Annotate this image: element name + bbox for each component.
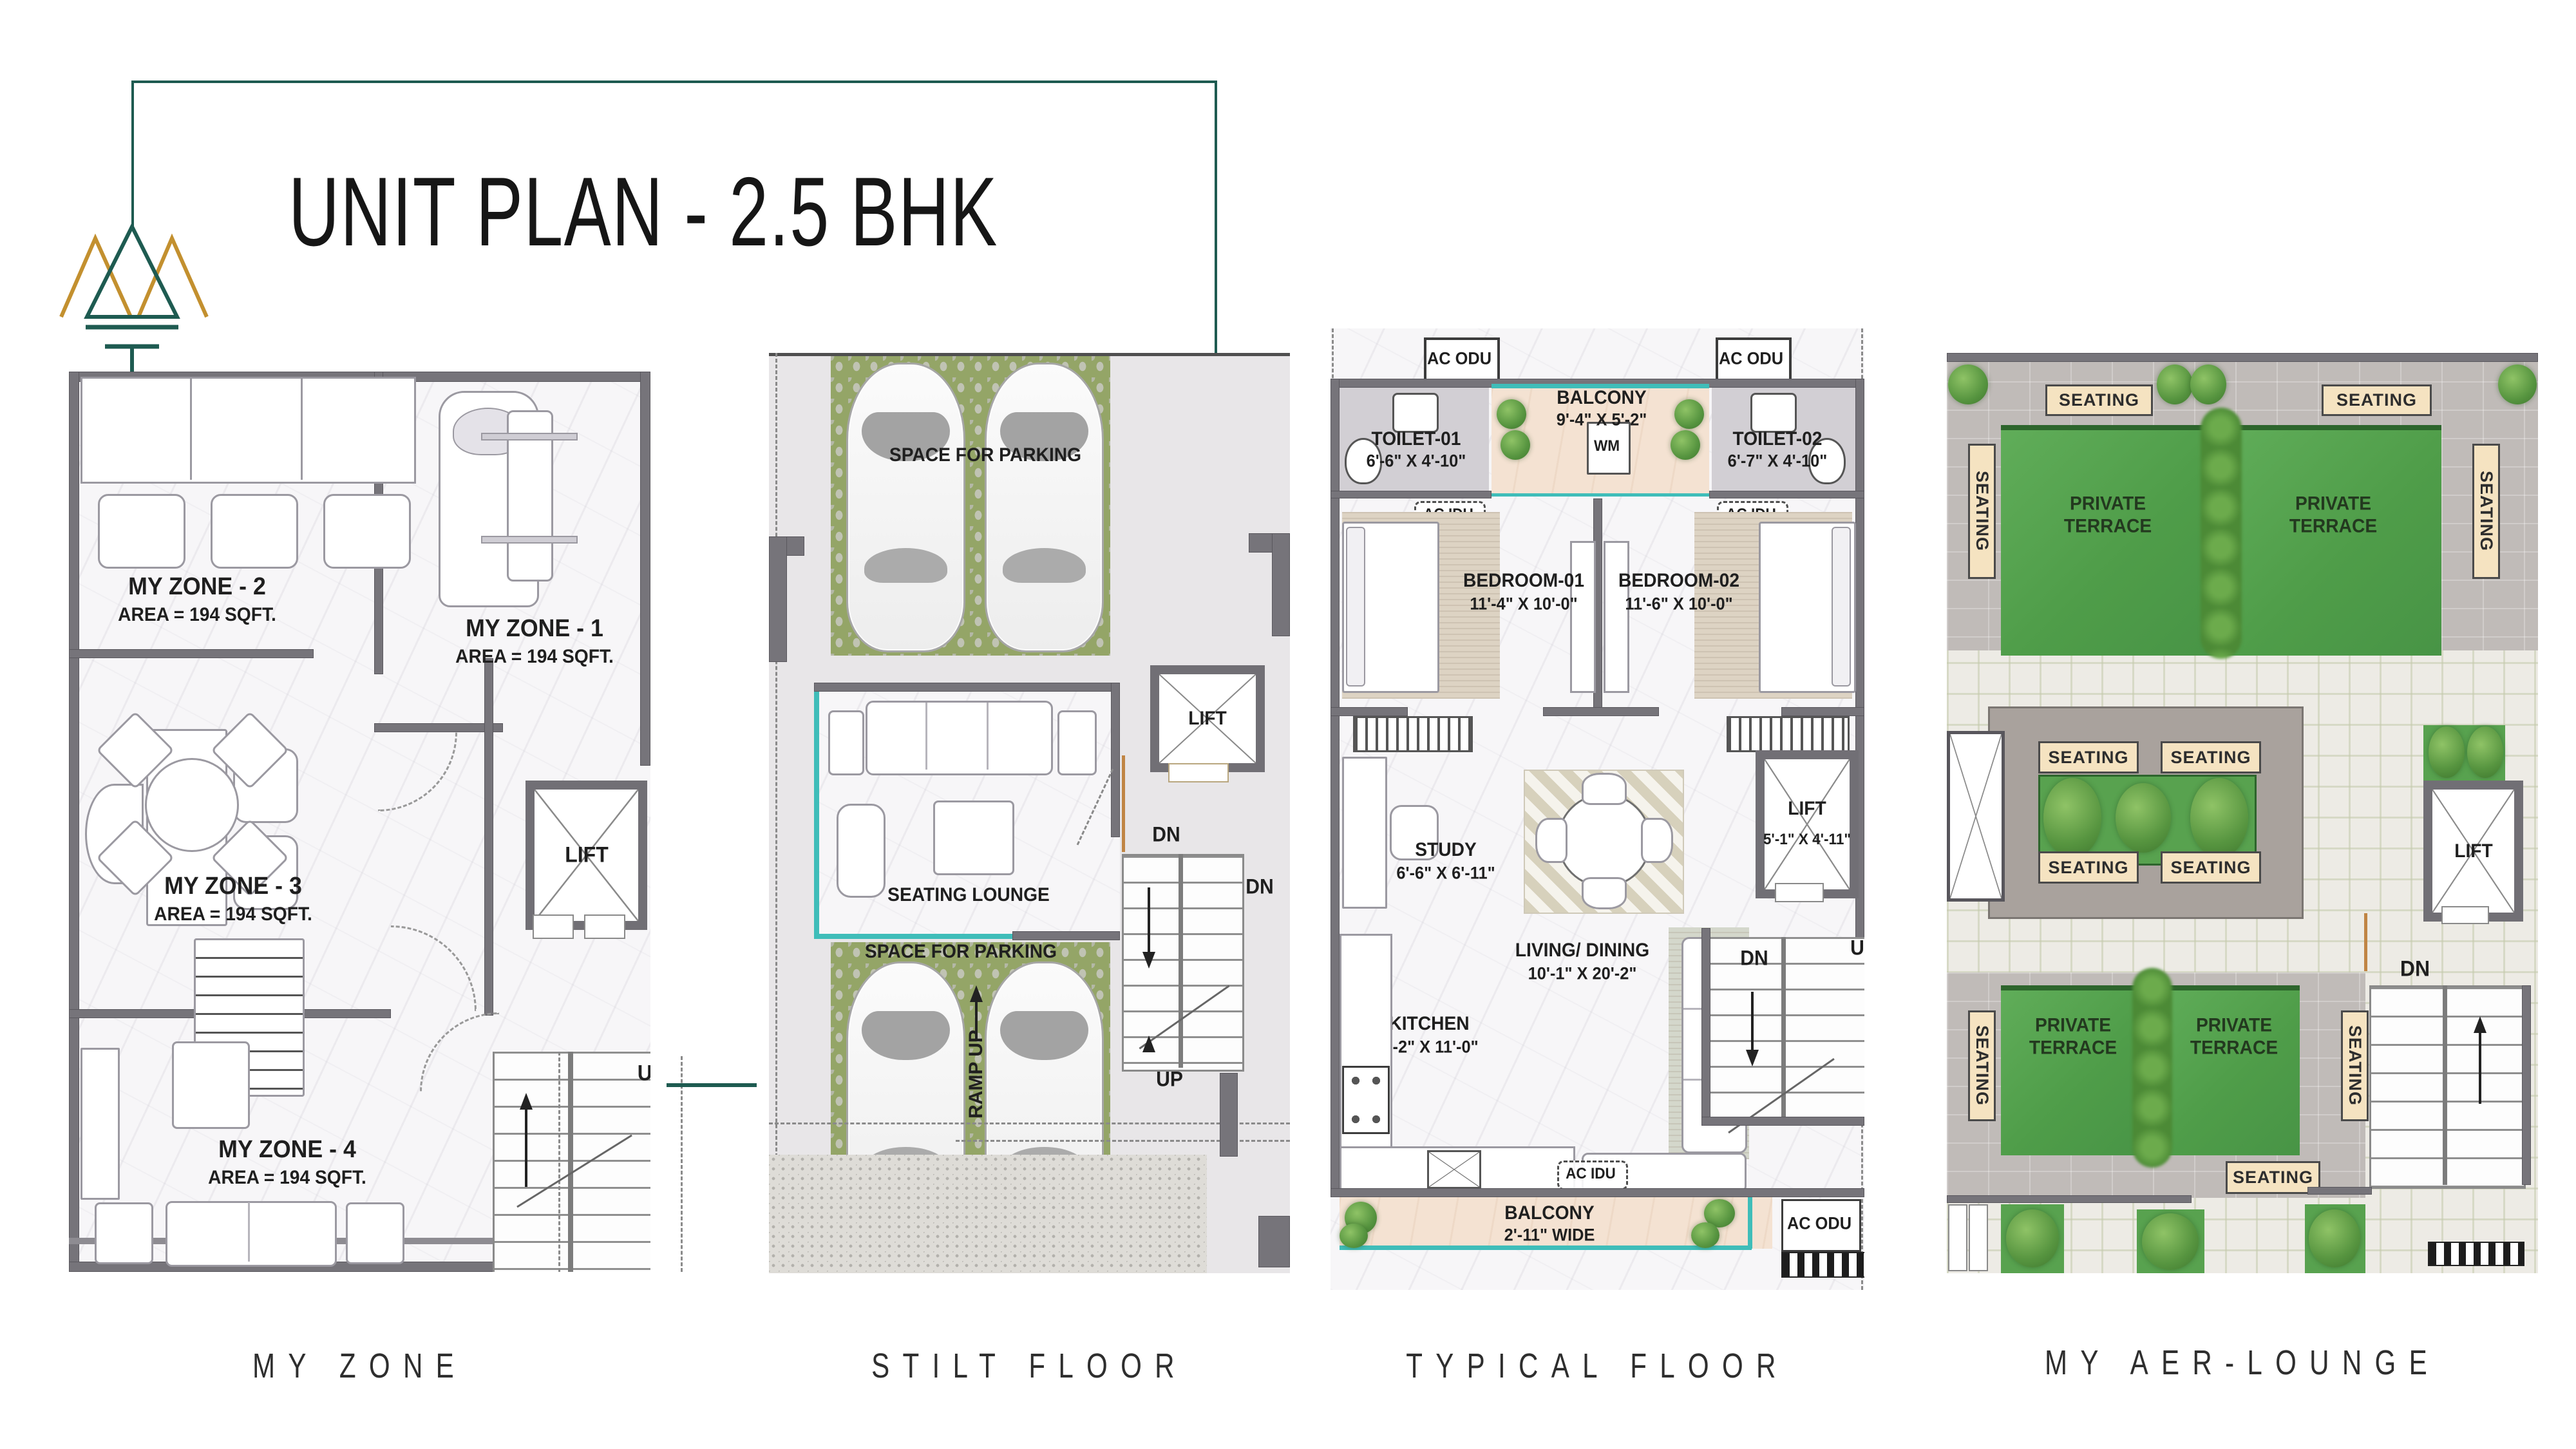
- balcony-top-dims: 9'-4" X 5'-2": [1557, 410, 1647, 430]
- room-area: AREA = 194 SQFT.: [118, 604, 276, 627]
- seating-bench: SEATING: [1968, 1010, 1996, 1121]
- ac-odu-label: AC ODU: [1719, 348, 1783, 368]
- study-dims: 6'-6" X 6'-11": [1396, 863, 1495, 883]
- driveway: [769, 1155, 1207, 1273]
- lift-shaft: LIFT 5'-1" X 4'-11": [1756, 750, 1859, 898]
- lift-sill: [1168, 763, 1229, 782]
- seating-label: SEATING: [2336, 390, 2417, 410]
- plan-typical-floor: AC ODU AC ODU WM BALCONY 9'-4" X 5'-2" T…: [1331, 328, 1864, 1290]
- plaza-shrub: [2190, 778, 2248, 858]
- wall: [1111, 683, 1120, 837]
- kitchen-name: KITCHEN: [1388, 1013, 1469, 1036]
- seating-bench: SEATING: [2226, 1161, 2320, 1194]
- seating-label: SEATING: [2048, 858, 2128, 878]
- ac-idu-label: AC IDU: [1566, 1165, 1616, 1183]
- corner-shrub: [1948, 365, 1988, 404]
- wall: [1701, 928, 1710, 1124]
- caption-aer-lounge: MY AER-LOUNGE: [2012, 1343, 2473, 1383]
- sofa-cushion-line: [925, 703, 927, 770]
- hedge-divider: [2201, 408, 2242, 659]
- wall: [1701, 1117, 1864, 1126]
- balcony-top-name: BALCONY: [1557, 387, 1646, 410]
- bottom-shrub: [2006, 1209, 2059, 1267]
- sofa: [166, 1201, 337, 1267]
- cabinet-row: [80, 377, 416, 484]
- tv-unit: [80, 1048, 120, 1200]
- kitchen-sink: [1427, 1150, 1481, 1189]
- living-dims: 10'-1" X 20'-2": [1528, 963, 1637, 983]
- bedroom2-dims: 11'-6" X 10'-0": [1625, 594, 1732, 614]
- bedroom1-name: BEDROOM-01: [1463, 570, 1584, 592]
- wall: [1331, 707, 1408, 716]
- seating-label: SEATING: [2233, 1168, 2313, 1188]
- setback-dashed: [769, 1122, 1290, 1124]
- wall: [1331, 379, 1340, 1197]
- planter-shrub: [1501, 430, 1530, 460]
- chair: [1582, 773, 1627, 805]
- seating-label: SEATING: [1972, 471, 1992, 551]
- room-label: MY ZONE - 1: [466, 615, 603, 643]
- caption-my-zone: MY ZONE: [133, 1346, 586, 1386]
- lounge-chair: [837, 804, 885, 898]
- balcony-bottom-name: BALCONY: [1504, 1202, 1594, 1225]
- dining-table-round: [145, 758, 239, 852]
- cabinet-divider: [190, 377, 192, 480]
- lift-planter-shrub: [2429, 726, 2465, 778]
- plot-boundary-dashed: [775, 353, 777, 1273]
- bedroom1-dims: 11'-4" X 10'-0": [1470, 594, 1577, 614]
- seating-label: SEATING: [2170, 748, 2251, 768]
- seating-bench: SEATING: [2045, 384, 2153, 416]
- room-area: AREA = 194 SQFT.: [455, 646, 614, 668]
- unit-boundary-dashed: [681, 1056, 683, 1272]
- door-swing: [420, 1012, 499, 1092]
- stair-rail: [568, 1052, 573, 1272]
- setback-dashed: [956, 1140, 1290, 1142]
- lift-shaft: LIFT: [526, 781, 647, 930]
- lift-label: LIFT: [565, 842, 608, 867]
- wall: [69, 372, 79, 1272]
- plan-stilt-floor: SPACE FOR PARKING SEATING LOUNGE LIFT DN: [769, 353, 1290, 1273]
- wm-label: WM: [1594, 437, 1620, 455]
- balcony-door-glass: [1492, 493, 1709, 497]
- wardrobe: [1353, 716, 1473, 752]
- private-terrace-label: PRIVATE TERRACE: [2064, 493, 2152, 538]
- up-label: UP: [638, 1061, 650, 1086]
- planter-shrub: [1691, 1222, 1719, 1248]
- wall: [2307, 1187, 2372, 1195]
- private-terrace-lawn: [2152, 985, 2300, 1155]
- side-table: [95, 1202, 153, 1264]
- wardrobe: [1727, 716, 1850, 752]
- connector-teal-tick: [667, 1083, 757, 1087]
- wall: [769, 536, 787, 662]
- wall: [1012, 931, 1120, 940]
- wall: [69, 649, 314, 658]
- seating-lounge-label: SEATING LOUNGE: [887, 884, 1050, 907]
- side-table: [346, 1202, 404, 1264]
- dn-label: DN: [1152, 823, 1180, 847]
- seating-bench: SEATING: [2322, 384, 2432, 416]
- private-terrace-label: PRIVATE TERRACE: [2289, 493, 2377, 538]
- bed-pillow: [1832, 527, 1851, 687]
- chair: [211, 494, 298, 569]
- wall: [1331, 491, 1492, 498]
- stair-arrow-stem: [525, 1110, 527, 1187]
- door-jamb: [2364, 913, 2367, 971]
- lift-sill: [2441, 906, 2489, 924]
- door-panel: [1604, 541, 1629, 693]
- wash-basin: [1392, 393, 1439, 433]
- stair-up-arrow: [1142, 1036, 1155, 1052]
- bottom-shrub: [2142, 1213, 2199, 1270]
- header-line-right-drop: [1215, 80, 1217, 355]
- stair-up-arrow: [2474, 1016, 2486, 1033]
- balcony-railing: [1340, 1245, 1752, 1250]
- lift-dims: 5'-1" X 4'-11": [1763, 831, 1851, 849]
- column: [1258, 1216, 1290, 1267]
- study-name: STUDY: [1415, 839, 1477, 862]
- ac-odu-label: AC ODU: [1427, 348, 1492, 368]
- sofa: [866, 701, 1053, 775]
- planter-shrub: [1674, 399, 1704, 429]
- corner-shrub: [2157, 365, 2193, 404]
- cabinet-divider: [301, 377, 303, 480]
- lift-planter-shrub: [2467, 726, 2503, 778]
- private-terrace-lawn: [2001, 985, 2152, 1155]
- lift-shaft: LIFT: [1150, 665, 1265, 772]
- wall: [1331, 1188, 1864, 1197]
- lift-label: LIFT: [2454, 840, 2493, 862]
- hedge-divider: [2132, 968, 2172, 1168]
- wall: [1781, 707, 1864, 716]
- wall: [814, 683, 1120, 692]
- stair-rail: [1781, 937, 1786, 1117]
- car: [985, 363, 1104, 652]
- glass-wall: [814, 692, 819, 939]
- dn-label: DN: [1740, 947, 1768, 971]
- bottom-shrub: [2309, 1209, 2360, 1267]
- private-terrace-label: PRIVATE TERRACE: [2029, 1015, 2117, 1059]
- toilet2-dims: 6'-7" X 4'-10": [1728, 451, 1828, 471]
- seating-bench: SEATING: [2161, 851, 2261, 884]
- bedroom2-name: BEDROOM-02: [1618, 570, 1739, 592]
- car: [846, 363, 965, 652]
- staircase: [1122, 854, 1244, 1072]
- bed-pillow: [1346, 527, 1365, 687]
- page-title: UNIT PLAN - 2.5 BHK: [289, 156, 998, 269]
- wall: [1543, 707, 1659, 716]
- stair-arrow-stem: [1751, 992, 1754, 1052]
- corner-shrub: [2498, 365, 2537, 404]
- wall: [1220, 1073, 1238, 1157]
- door-swing: [391, 925, 477, 1011]
- dining-table-round: [1557, 793, 1651, 887]
- seating-bench: SEATING: [2038, 741, 2139, 773]
- chair: [1582, 877, 1627, 909]
- room-area: AREA = 194 SQFT.: [154, 904, 312, 926]
- private-terrace-label: PRIVATE TERRACE: [2190, 1015, 2278, 1059]
- stair-dash-rail: [558, 1052, 560, 1272]
- armchair: [828, 710, 864, 775]
- wall: [1947, 1195, 2192, 1203]
- ramp-arrow: [970, 985, 983, 1002]
- dn-label-adjacent: DN: [1245, 875, 1273, 899]
- lift-label: LIFT: [1188, 708, 1227, 730]
- balcony-railing: [1748, 1197, 1752, 1249]
- dn-label: DN: [2400, 956, 2430, 981]
- caption-stilt-floor: STILT FLOOR: [826, 1346, 1233, 1386]
- chair: [323, 494, 411, 569]
- stair-up-arrow: [520, 1093, 533, 1110]
- planter-shrub: [1340, 1224, 1368, 1248]
- header-line-left-drop: [131, 80, 134, 227]
- wall: [1947, 353, 2538, 362]
- up-label: UP: [1156, 1068, 1183, 1092]
- lift-sill: [584, 914, 625, 939]
- toilet1-dims: 6'-6" X 4'-10": [1367, 451, 1466, 471]
- seating-label: SEATING: [2345, 1025, 2365, 1106]
- plan-my-zone: MY ZONE - 2 AREA = 194 SQFT. MY ZONE - 1…: [69, 372, 650, 1272]
- room-label: MY ZONE - 2: [128, 573, 266, 601]
- parking-label: SPACE FOR PARKING: [865, 941, 1057, 963]
- toilet1-name: TOILET-01: [1372, 428, 1461, 451]
- corner-shrub: [2190, 365, 2226, 404]
- unit-plan-sheet: UNIT PLAN - 2.5 BHK MY ZONE - 2 AREA = 1…: [0, 0, 2576, 1449]
- seating-bench: SEATING: [2161, 741, 2261, 773]
- room-label: MY ZONE - 3: [164, 873, 302, 901]
- room-area: AREA = 194 SQFT.: [208, 1167, 366, 1189]
- lift-sill: [1775, 883, 1824, 902]
- seating-label: SEATING: [2170, 858, 2251, 878]
- kitchen-dims: 6'-2" X 11'-0": [1379, 1037, 1478, 1057]
- vent-box: [1948, 1204, 1967, 1271]
- coffee-table: [933, 800, 1014, 875]
- seating-bench: SEATING: [2038, 851, 2139, 884]
- sofa-cushion-line: [248, 1202, 250, 1262]
- toilet2-name: TOILET-02: [1733, 428, 1823, 451]
- sofa-cushion-line: [987, 703, 989, 770]
- staircase: [2369, 985, 2526, 1189]
- ac-odu-label: AC ODU: [1787, 1213, 1851, 1233]
- entry-steps: [2428, 1242, 2524, 1266]
- door-panel: [1570, 541, 1596, 693]
- glass-wall: [819, 934, 1012, 939]
- wash-basin: [1750, 393, 1797, 433]
- wall: [484, 658, 493, 1016]
- side-board: [172, 1041, 250, 1129]
- triple-mountain-logo: [55, 213, 216, 380]
- seating-label: SEATING: [1972, 1025, 1992, 1106]
- armchair: [1057, 710, 1097, 775]
- stair-arrow-stem: [1148, 887, 1150, 954]
- study-desk: [1342, 757, 1387, 909]
- seating-bench: SEATING: [2472, 444, 2500, 579]
- door-swing: [378, 732, 457, 811]
- chair: [1641, 818, 1673, 863]
- parking-label: SPACE FOR PARKING: [889, 444, 1081, 467]
- wall: [1709, 491, 1864, 498]
- void-skylight: [1947, 731, 2005, 902]
- plaza-shrub: [2116, 783, 2171, 853]
- stair-rail: [1179, 854, 1183, 1068]
- living-name: LIVING/ DINING: [1515, 940, 1649, 962]
- plaza-shrub: [2043, 778, 2101, 858]
- seating-label: SEATING: [2476, 471, 2496, 551]
- lift-name: LIFT: [1788, 798, 1826, 820]
- wall: [1272, 533, 1290, 636]
- stair-rail: [2443, 985, 2447, 1185]
- seating-bench: SEATING: [1968, 444, 1996, 579]
- wall: [640, 372, 650, 766]
- caption-typical-floor: TYPICAL FLOOR: [1389, 1346, 1806, 1386]
- up-label: UP: [1850, 936, 1864, 960]
- wall: [374, 723, 503, 732]
- door-jamb: [1122, 755, 1125, 852]
- seating-bench: SEATING: [2341, 1010, 2369, 1121]
- balcony-bottom-dims: 2'-11" WIDE: [1504, 1225, 1595, 1245]
- stair-arrow-stem: [2479, 1033, 2481, 1104]
- private-terrace-lawn: [2221, 425, 2441, 656]
- entry-steps: [1781, 1252, 1864, 1278]
- lift-shaft: LIFT: [2423, 781, 2523, 922]
- plan-aer-lounge: SEATING SEATING SEATING SEATING PRIVATE …: [1947, 353, 2538, 1273]
- seating-label: SEATING: [2059, 390, 2139, 410]
- seating-label: SEATING: [2048, 748, 2128, 768]
- chair: [1535, 818, 1567, 863]
- chair: [98, 494, 185, 569]
- header-line-horizontal: [131, 80, 1217, 83]
- vent-box: [1969, 1204, 1988, 1271]
- wall: [2522, 985, 2531, 1185]
- ramp-arrow-stem: [975, 1000, 978, 1039]
- planter-shrub: [1497, 399, 1526, 429]
- room-label: MY ZONE - 4: [218, 1136, 356, 1164]
- planter-shrub: [1671, 430, 1700, 460]
- gym-bar: [481, 536, 578, 544]
- ramp-up-label: RAMP UP: [965, 1030, 987, 1119]
- lift-sill: [533, 914, 574, 939]
- private-terrace-lawn: [2001, 425, 2221, 656]
- stove: [1342, 1066, 1390, 1134]
- gym-bar: [481, 433, 578, 440]
